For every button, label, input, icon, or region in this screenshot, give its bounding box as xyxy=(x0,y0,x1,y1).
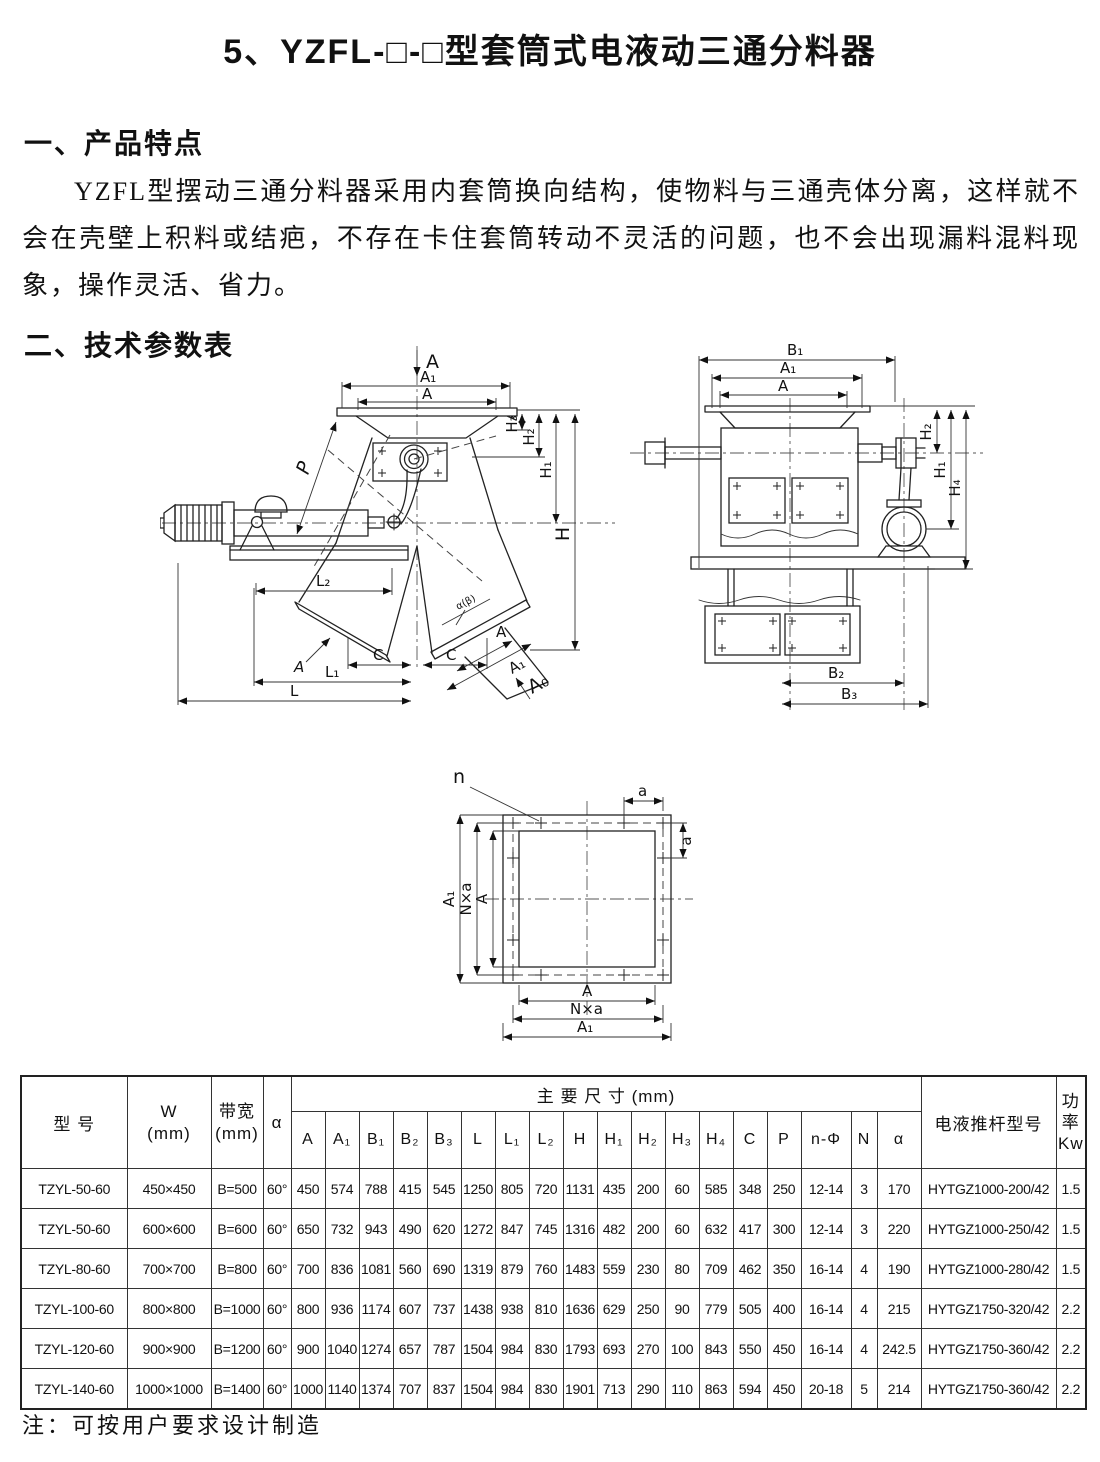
dim-col-header: α xyxy=(877,1112,921,1169)
dim-label-a1-top: A₁ xyxy=(420,368,436,386)
cell-dim: 1636 xyxy=(563,1289,597,1329)
cell-dim: 607 xyxy=(393,1289,427,1329)
cell-dim: 620 xyxy=(427,1209,461,1249)
cell-dim: 787 xyxy=(427,1329,461,1369)
cell-dim: 435 xyxy=(597,1169,631,1209)
cell-power: 2.2 xyxy=(1056,1329,1086,1369)
dim-label-a1-left: A₁ xyxy=(440,891,458,907)
front-centerlines xyxy=(162,346,615,670)
cell-bandwidth: B=500 xyxy=(211,1169,263,1209)
cell-dim: 900 xyxy=(291,1329,325,1369)
col-header-alpha: α xyxy=(263,1076,291,1169)
dim-label-c-left: C xyxy=(373,646,383,664)
dim-label-b2: B₂ xyxy=(828,664,844,682)
cell-dim: 100 xyxy=(665,1329,699,1369)
dim-col-header: A₁ xyxy=(325,1112,359,1169)
cell-dim: 300 xyxy=(767,1209,801,1249)
cell-alpha: 60° xyxy=(263,1209,291,1249)
spec-row: TZYL-100-60800×800B=100060°8009361174607… xyxy=(21,1289,1086,1329)
cell-dim: 450 xyxy=(291,1169,325,1209)
cell-dim: 690 xyxy=(427,1249,461,1289)
cell-dim: 190 xyxy=(877,1249,921,1289)
dim-label-l1: L₁ xyxy=(325,663,339,681)
cell-model: TZYL-120-60 xyxy=(21,1329,127,1369)
dim-label-c-right: C xyxy=(446,646,456,664)
dim-label-a1-side: A₁ xyxy=(780,359,796,377)
dim-label-angle: α(β) xyxy=(454,593,478,613)
cell-dim: 270 xyxy=(631,1329,665,1369)
section-label-a-left: A xyxy=(293,658,304,676)
cell-dim: 242.5 xyxy=(877,1329,921,1369)
dim-label-a-side: A xyxy=(778,377,789,395)
cell-dim: 220 xyxy=(877,1209,921,1249)
cell-w: 600×600 xyxy=(127,1209,211,1249)
cell-dim: 657 xyxy=(393,1329,427,1369)
cell-actuator: HYTGZ1000-280/42 xyxy=(921,1249,1056,1289)
cell-alpha: 60° xyxy=(263,1369,291,1410)
dim-label-h: H xyxy=(552,527,574,541)
cell-dim: 700 xyxy=(291,1249,325,1289)
dim-label-a-outlet: A xyxy=(496,623,507,641)
cell-dim: 760 xyxy=(529,1249,563,1289)
cell-dim: 788 xyxy=(359,1169,393,1209)
dim-label-h2-side: H₂ xyxy=(917,423,935,440)
cell-actuator: HYTGZ1750-360/42 xyxy=(921,1369,1056,1410)
cell-dim: 60 xyxy=(665,1209,699,1249)
dim-label-a-top: A xyxy=(422,385,433,403)
cell-dim: 1274 xyxy=(359,1329,393,1369)
cell-model: TZYL-50-60 xyxy=(21,1169,127,1209)
spec-row: TZYL-140-601000×1000B=140060°10001140137… xyxy=(21,1369,1086,1410)
cell-dim: 170 xyxy=(877,1169,921,1209)
cell-dim: 1793 xyxy=(563,1329,597,1369)
cell-dim: 200 xyxy=(631,1209,665,1249)
col-header-model: 型 号 xyxy=(21,1076,127,1169)
cell-dim: 505 xyxy=(733,1289,767,1329)
cell-dim: 984 xyxy=(495,1329,529,1369)
cell-dim: 984 xyxy=(495,1369,529,1410)
dim-col-header: H xyxy=(563,1112,597,1169)
cell-dim: 214 xyxy=(877,1369,921,1410)
cell-power: 1.5 xyxy=(1056,1249,1086,1289)
cell-alpha: 60° xyxy=(263,1329,291,1369)
cell-dim: 650 xyxy=(291,1209,325,1249)
cell-dim: 290 xyxy=(631,1369,665,1410)
cell-dim: 16-14 xyxy=(801,1249,851,1289)
cell-dim: 632 xyxy=(699,1209,733,1249)
cell-dim: 693 xyxy=(597,1329,631,1369)
col-header-w: W (mm) xyxy=(127,1076,211,1169)
cell-dim: 1174 xyxy=(359,1289,393,1329)
cell-dim: 12-14 xyxy=(801,1209,851,1249)
cell-w: 450×450 xyxy=(127,1169,211,1209)
dim-col-header: L xyxy=(461,1112,495,1169)
technical-parameters-table: 型 号 W (mm) 带宽 (mm) α 主 要 尺 寸 (mm) 电液推杆型号… xyxy=(20,1075,1087,1410)
cell-bandwidth: B=800 xyxy=(211,1249,263,1289)
dim-label-h2: H₂ xyxy=(520,428,538,445)
cell-dim: 707 xyxy=(393,1369,427,1410)
flange-plan-drawing: n a a A N×a A₁ A N×a A₁ xyxy=(425,753,725,1068)
spec-row: TZYL-50-60600×600B=60060°650732943490620… xyxy=(21,1209,1086,1249)
dim-col-header: B₂ xyxy=(393,1112,427,1169)
cell-dim: 16-14 xyxy=(801,1329,851,1369)
dim-col-header: C xyxy=(733,1112,767,1169)
cell-dim: 938 xyxy=(495,1289,529,1329)
cell-dim: 805 xyxy=(495,1169,529,1209)
cell-dim: 60 xyxy=(665,1169,699,1209)
cell-dim: 1140 xyxy=(325,1369,359,1410)
cell-actuator: HYTGZ1750-360/42 xyxy=(921,1329,1056,1369)
cell-dim: 110 xyxy=(665,1369,699,1410)
cell-power: 1.5 xyxy=(1056,1169,1086,1209)
cell-dim: 1131 xyxy=(563,1169,597,1209)
side-housing xyxy=(645,406,965,663)
cell-dim: 1319 xyxy=(461,1249,495,1289)
cell-dim: 4 xyxy=(851,1249,877,1289)
dim-col-header: H₂ xyxy=(631,1112,665,1169)
cell-bandwidth: B=1200 xyxy=(211,1329,263,1369)
dim-label-a-bottom: A xyxy=(582,982,593,1000)
cell-dim: 830 xyxy=(529,1329,563,1369)
dim-label-a-pitch-right: a xyxy=(677,836,695,845)
cell-dim: 594 xyxy=(733,1369,767,1410)
spec-row: TZYL-80-60700×700B=80060°700836108156069… xyxy=(21,1249,1086,1289)
cell-model: TZYL-50-60 xyxy=(21,1209,127,1249)
cell-dim: 490 xyxy=(393,1209,427,1249)
cell-dim: 737 xyxy=(427,1289,461,1329)
cell-w: 800×800 xyxy=(127,1289,211,1329)
dim-col-header: n-Φ xyxy=(801,1112,851,1169)
cell-power: 1.5 xyxy=(1056,1209,1086,1249)
cell-model: TZYL-140-60 xyxy=(21,1369,127,1410)
page-title: 5、YZFL-□-□型套筒式电液动三通分料器 xyxy=(0,24,1100,73)
cell-dim: 230 xyxy=(631,1249,665,1289)
cell-dim: 879 xyxy=(495,1249,529,1289)
cell-model: TZYL-100-60 xyxy=(21,1289,127,1329)
dim-col-header: A xyxy=(291,1112,325,1169)
cell-dim: 450 xyxy=(767,1369,801,1410)
cell-dim: 1250 xyxy=(461,1169,495,1209)
cell-dim: 1374 xyxy=(359,1369,393,1410)
cell-dim: 550 xyxy=(733,1329,767,1369)
cell-dim: 3 xyxy=(851,1209,877,1249)
cell-w: 1000×1000 xyxy=(127,1369,211,1410)
cell-dim: 1272 xyxy=(461,1209,495,1249)
col-header-main-dims: 主 要 尺 寸 (mm) xyxy=(291,1076,921,1112)
cell-dim: 20-18 xyxy=(801,1369,851,1410)
cell-dim: 215 xyxy=(877,1289,921,1329)
cell-dim: 800 xyxy=(291,1289,325,1329)
cell-dim: 3 xyxy=(851,1169,877,1209)
dim-label-p: P xyxy=(292,458,317,477)
side-plate-bolts xyxy=(718,482,847,652)
cell-dim: 943 xyxy=(359,1209,393,1249)
cell-dim: 810 xyxy=(529,1289,563,1329)
dim-label-h1-side: H₁ xyxy=(931,461,949,478)
cell-dim: 863 xyxy=(699,1369,733,1410)
cell-dim: 830 xyxy=(529,1369,563,1410)
cell-dim: 1000 xyxy=(291,1369,325,1410)
dim-col-header: H₁ xyxy=(597,1112,631,1169)
cell-bandwidth: B=1000 xyxy=(211,1289,263,1329)
col-header-actuator: 电液推杆型号 xyxy=(921,1076,1056,1169)
cell-alpha: 60° xyxy=(263,1249,291,1289)
cell-dim: 250 xyxy=(631,1289,665,1329)
cell-dim: 350 xyxy=(767,1249,801,1289)
col-header-bandwidth: 带宽 (mm) xyxy=(211,1076,263,1169)
cell-dim: 560 xyxy=(393,1249,427,1289)
cell-actuator: HYTGZ1000-250/42 xyxy=(921,1209,1056,1249)
cell-w: 700×700 xyxy=(127,1249,211,1289)
cell-dim: 200 xyxy=(631,1169,665,1209)
dim-label-l: L xyxy=(290,682,299,700)
front-view-drawing: A A₁ A H₃ H₂ H₁ H P L₂ C C xyxy=(160,338,630,740)
cell-dim: 629 xyxy=(597,1289,631,1329)
cell-actuator: HYTGZ1000-200/42 xyxy=(921,1169,1056,1209)
cell-dim: 745 xyxy=(529,1209,563,1249)
cell-dim: 450 xyxy=(767,1329,801,1369)
cell-dim: 732 xyxy=(325,1209,359,1249)
dim-label-a1-bottom: A₁ xyxy=(577,1018,593,1036)
cell-dim: 1504 xyxy=(461,1369,495,1410)
cell-dim: 1504 xyxy=(461,1329,495,1369)
cell-dim: 1901 xyxy=(563,1369,597,1410)
cell-dim: 574 xyxy=(325,1169,359,1209)
cell-dim: 462 xyxy=(733,1249,767,1289)
cell-actuator: HYTGZ1750-320/42 xyxy=(921,1289,1056,1329)
cell-dim: 545 xyxy=(427,1169,461,1209)
side-dimensions: B₁ A₁ A H₂ H₁ H₄ B₂ B₃ xyxy=(699,341,975,708)
cell-dim: 5 xyxy=(851,1369,877,1410)
dim-col-header: B₁ xyxy=(359,1112,393,1169)
cell-dim: 348 xyxy=(733,1169,767,1209)
dim-col-header: N xyxy=(851,1112,877,1169)
spec-row: TZYL-120-60900×900B=120060°9001040127465… xyxy=(21,1329,1086,1369)
front-swing-phantom-lines xyxy=(312,435,496,581)
cell-dim: 1316 xyxy=(563,1209,597,1249)
dim-label-a1-outlet: A₁ xyxy=(505,654,528,678)
cell-w: 900×900 xyxy=(127,1329,211,1369)
side-view-drawing: B₁ A₁ A H₂ H₁ H₄ B₂ B₃ xyxy=(625,338,1005,718)
dim-col-header: H₃ xyxy=(665,1112,699,1169)
cell-dim: 779 xyxy=(699,1289,733,1329)
cell-power: 2.2 xyxy=(1056,1289,1086,1329)
cell-alpha: 60° xyxy=(263,1289,291,1329)
cell-dim: 843 xyxy=(699,1329,733,1369)
cell-dim: 12-14 xyxy=(801,1169,851,1209)
dim-label-l2: L₂ xyxy=(316,572,330,590)
cell-dim: 417 xyxy=(733,1209,767,1249)
footnote: 注：可按用户要求设计制造 xyxy=(22,1408,322,1440)
cell-dim: 90 xyxy=(665,1289,699,1329)
cell-bandwidth: B=600 xyxy=(211,1209,263,1249)
cell-dim: 709 xyxy=(699,1249,733,1289)
cell-model: TZYL-80-60 xyxy=(21,1249,127,1289)
cell-dim: 1483 xyxy=(563,1249,597,1289)
cell-dim: 559 xyxy=(597,1249,631,1289)
cell-dim: 936 xyxy=(325,1289,359,1329)
cell-dim: 400 xyxy=(767,1289,801,1329)
label-n-bolt-count: n xyxy=(453,766,465,788)
cell-dim: 720 xyxy=(529,1169,563,1209)
cell-dim: 836 xyxy=(325,1249,359,1289)
product-features-paragraph: YZFL型摆动三通分料器采用内套筒换向结构，使物料与三通壳体分离，这样就不会在壳… xyxy=(22,168,1080,309)
cell-dim: 713 xyxy=(597,1369,631,1410)
cell-dim: 250 xyxy=(767,1169,801,1209)
dim-label-h3: H₃ xyxy=(503,415,521,432)
catalog-page: 5、YZFL-□-□型套筒式电液动三通分料器 一、产品特点 YZFL型摆动三通分… xyxy=(0,0,1100,1462)
dim-label-nxa-bottom: N×a xyxy=(570,1000,603,1018)
dim-label-h1: H₁ xyxy=(537,461,555,478)
cell-dim: 1081 xyxy=(359,1249,393,1289)
dim-label-b3: B₃ xyxy=(841,685,857,703)
dim-col-header: L₂ xyxy=(529,1112,563,1169)
cell-dim: 4 xyxy=(851,1289,877,1329)
cell-dim: 415 xyxy=(393,1169,427,1209)
cell-alpha: 60° xyxy=(263,1169,291,1209)
dim-label-a0-outlet: A₀ xyxy=(524,669,553,698)
cell-dim: 847 xyxy=(495,1209,529,1249)
cell-dim: 837 xyxy=(427,1369,461,1410)
dim-label-b1: B₁ xyxy=(787,341,803,359)
cell-dim: 1438 xyxy=(461,1289,495,1329)
cell-dim: 1040 xyxy=(325,1329,359,1369)
dim-col-header: H₄ xyxy=(699,1112,733,1169)
dim-col-header: B₃ xyxy=(427,1112,461,1169)
section1-heading: 一、产品特点 xyxy=(24,122,204,162)
col-header-power: 功 率 Kw xyxy=(1056,1076,1086,1169)
cell-dim: 4 xyxy=(851,1329,877,1369)
cell-dim: 80 xyxy=(665,1249,699,1289)
cell-bandwidth: B=1400 xyxy=(211,1369,263,1410)
flange-dimensions: n a a A N×a A₁ A N×a A₁ xyxy=(440,766,695,1041)
front-actuator xyxy=(160,496,408,560)
dim-col-header: P xyxy=(767,1112,801,1169)
dim-label-a-pitch-top: a xyxy=(638,782,647,800)
cell-dim: 482 xyxy=(597,1209,631,1249)
dim-label-a-left: A xyxy=(473,893,491,904)
dim-label-h4: H₄ xyxy=(946,479,964,496)
cell-dim: 585 xyxy=(699,1169,733,1209)
spec-row: TZYL-50-60450×450B=50060°450574788415545… xyxy=(21,1169,1086,1209)
dim-col-header: L₁ xyxy=(495,1112,529,1169)
cell-power: 2.2 xyxy=(1056,1369,1086,1410)
cell-dim: 16-14 xyxy=(801,1289,851,1329)
